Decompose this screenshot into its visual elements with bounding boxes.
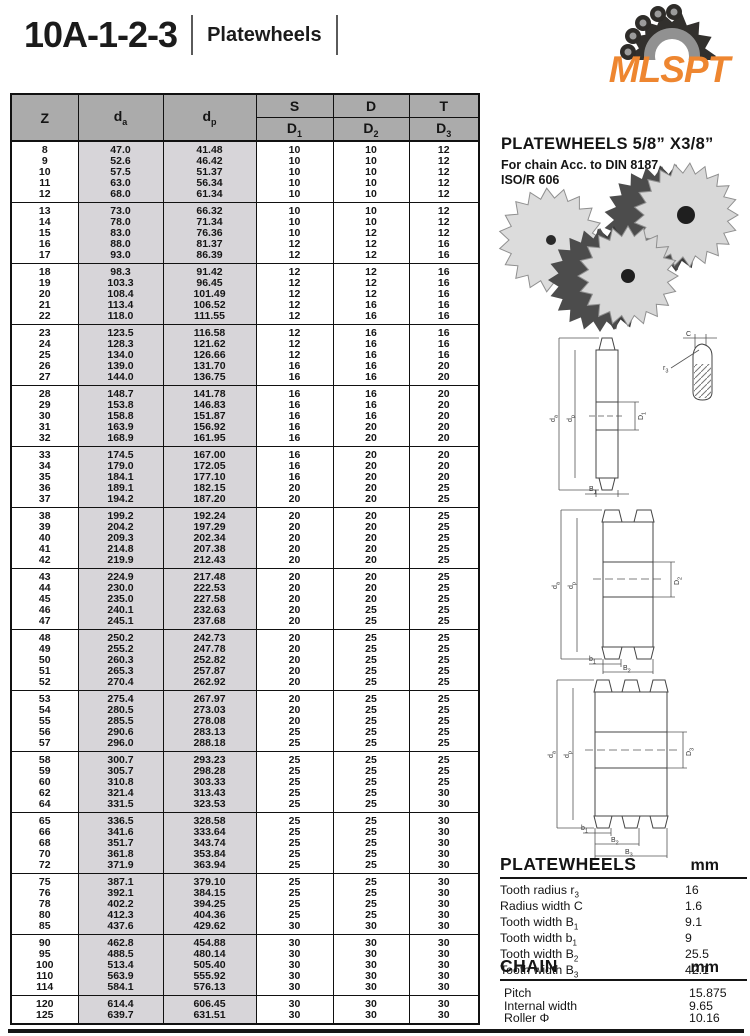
table-cell: 47 (11, 616, 78, 630)
table-cell: 101.49 (163, 289, 256, 300)
table-cell: 283.13 (163, 727, 256, 738)
table-cell: 488.5 (78, 949, 163, 960)
title-divider (336, 15, 338, 55)
table-cell: 16 (333, 400, 409, 411)
table-cell: 68.0 (78, 189, 163, 203)
table-cell: 32 (11, 433, 78, 447)
table-row: 65336.5328.58252530 (11, 813, 479, 827)
table-cell: 80 (11, 910, 78, 921)
table-group: 65336.5328.5825253066341.6333.6425253068… (11, 813, 479, 874)
table-cell: 20 (256, 605, 333, 616)
table-group: 23123.5116.5812161624128.3121.6212161625… (11, 325, 479, 386)
table-cell: 12 (256, 289, 333, 300)
col-header-d2: D2 (333, 118, 409, 142)
table-cell: 56.34 (163, 178, 256, 189)
table-cell: 10 (11, 167, 78, 178)
table-cell: 10 (333, 141, 409, 156)
table-cell: 513.4 (78, 960, 163, 971)
table-row: 125639.7631.51303030 (11, 1010, 479, 1025)
table-row: 80412.3404.36252530 (11, 910, 479, 921)
table-cell: 270.4 (78, 677, 163, 691)
table-cell: 10 (256, 178, 333, 189)
table-cell: 20 (409, 422, 479, 433)
table-cell: 250.2 (78, 630, 163, 644)
table-cell: 16 (256, 447, 333, 461)
table-row: 30158.8151.87161620 (11, 411, 479, 422)
table-cell: 584.1 (78, 982, 163, 996)
table-cell: 25 (333, 691, 409, 705)
table-cell: 20 (256, 666, 333, 677)
table-row: 847.041.48101012 (11, 141, 479, 156)
table-row: 45235.0227.58202025 (11, 594, 479, 605)
table-cell: 75 (11, 874, 78, 888)
table-cell: 16 (333, 311, 409, 325)
svg-text:C: C (686, 331, 691, 338)
table-row: 70361.8353.84252530 (11, 849, 479, 860)
table-cell: 172.05 (163, 461, 256, 472)
table-cell: 20 (256, 630, 333, 644)
sprockets-photo (486, 158, 748, 336)
table-cell: 12 (333, 239, 409, 250)
table-row: 56290.6283.13252525 (11, 727, 479, 738)
table-cell: 55 (11, 716, 78, 727)
table-cell: 41.48 (163, 141, 256, 156)
table-cell: 110 (11, 971, 78, 982)
table-cell: 118.0 (78, 311, 163, 325)
table-cell: 19 (11, 278, 78, 289)
table-cell: 25 (333, 727, 409, 738)
table-row: 51265.3257.87202525 (11, 666, 479, 677)
table-cell: 10 (333, 178, 409, 189)
table-cell: 25 (409, 533, 479, 544)
svg-text:da: da (550, 414, 560, 422)
table-cell: 387.1 (78, 874, 163, 888)
table-cell: 30 (333, 960, 409, 971)
table-cell: 21 (11, 300, 78, 311)
table-cell: 30 (333, 971, 409, 982)
table-cell: 14 (11, 217, 78, 228)
table-cell: 24 (11, 339, 78, 350)
table-cell: 100 (11, 960, 78, 971)
table-cell: 20 (333, 555, 409, 569)
table-cell: 20 (333, 433, 409, 447)
table-cell: 30 (256, 996, 333, 1010)
table-cell: 20 (256, 644, 333, 655)
table-cell: 25 (409, 644, 479, 655)
table-cell: 30 (409, 935, 479, 949)
triplex-drawing: da dp D3 b1 B2 B3 (545, 668, 750, 860)
table-cell: 16 (333, 411, 409, 422)
table-row: 1898.391.42121216 (11, 264, 479, 278)
table-cell: 16 (409, 289, 479, 300)
table-cell: 30 (409, 971, 479, 982)
table-cell: 53 (11, 691, 78, 705)
table-row: 26139.0131.70161620 (11, 361, 479, 372)
table-cell: 10 (333, 156, 409, 167)
table-row: 78402.2394.25252530 (11, 899, 479, 910)
table-cell: 30 (333, 1010, 409, 1025)
table-cell: 217.48 (163, 569, 256, 583)
table-row: 21113.4106.52121616 (11, 300, 479, 311)
table-cell: 26 (11, 361, 78, 372)
table-cell: 30 (409, 982, 479, 996)
table-cell: 179.0 (78, 461, 163, 472)
table-cell: 30 (409, 799, 479, 813)
table-cell: 25 (333, 752, 409, 766)
table-cell: 25 (256, 899, 333, 910)
table-row: 23123.5116.58121616 (11, 325, 479, 339)
table-cell: 30 (256, 921, 333, 935)
table-cell: 91.42 (163, 264, 256, 278)
brand-name: MLSPT (594, 49, 744, 91)
table-cell: 25 (333, 716, 409, 727)
table-cell: 20 (333, 583, 409, 594)
table-row: 38199.2192.24202025 (11, 508, 479, 522)
page-bottom-rule (8, 1029, 744, 1033)
table-cell: 27 (11, 372, 78, 386)
table-cell: 95 (11, 949, 78, 960)
table-group: 28148.7141.7816162029153.8146.8316162030… (11, 386, 479, 447)
table-cell: 25 (333, 738, 409, 752)
table-cell: 25 (256, 752, 333, 766)
table-row: 72371.9363.94252530 (11, 860, 479, 874)
table-cell: 146.83 (163, 400, 256, 411)
table-cell: 16 (409, 264, 479, 278)
table-cell: 288.18 (163, 738, 256, 752)
table-cell: 16 (333, 372, 409, 386)
table-cell: 30 (409, 921, 479, 935)
table-cell: 16 (256, 386, 333, 400)
table-header: Z da dp S D T D1 D2 D3 (11, 94, 479, 141)
svg-text:B2: B2 (611, 837, 619, 847)
table-cell: 54 (11, 705, 78, 716)
table-cell: 328.58 (163, 813, 256, 827)
table-cell: 38 (11, 508, 78, 522)
col-header-dp: dp (163, 94, 256, 141)
col-header-d: D (333, 94, 409, 118)
table-cell: 25 (256, 838, 333, 849)
table-cell: 25 (333, 605, 409, 616)
table-row: 1268.061.34101012 (11, 189, 479, 203)
table-cell: 17 (11, 250, 78, 264)
table-cell: 384.15 (163, 888, 256, 899)
table-cell: 576.13 (163, 982, 256, 996)
table-cell: 10 (333, 203, 409, 217)
table-row: 37194.2187.20202025 (11, 494, 479, 508)
table-cell: 153.8 (78, 400, 163, 411)
table-cell: 25 (256, 813, 333, 827)
table-row: 120614.4606.45303030 (11, 996, 479, 1010)
table-cell: 606.45 (163, 996, 256, 1010)
table-row: 27144.0136.75161620 (11, 372, 479, 386)
table-cell: 199.2 (78, 508, 163, 522)
table-cell: 29 (11, 400, 78, 411)
table-cell: 25 (409, 766, 479, 777)
table-cell: 20 (409, 372, 479, 386)
table-cell: 12 (256, 239, 333, 250)
table-row: 90462.8454.88303030 (11, 935, 479, 949)
table-cell: 12 (333, 278, 409, 289)
table-group: 38199.2192.2420202539204.2197.2920202540… (11, 508, 479, 569)
table-cell: 113.4 (78, 300, 163, 311)
table-cell: 25 (333, 799, 409, 813)
table-cell: 237.68 (163, 616, 256, 630)
table-row: 57296.0288.18252525 (11, 738, 479, 752)
table-cell: 148.7 (78, 386, 163, 400)
table-row: 60310.8303.33252525 (11, 777, 479, 788)
table-cell: 313.43 (163, 788, 256, 799)
table-cell: 12 (11, 189, 78, 203)
table-row: 50260.3252.82202525 (11, 655, 479, 666)
table-cell: 293.23 (163, 752, 256, 766)
table-cell: 20 (256, 583, 333, 594)
table-cell: 235.0 (78, 594, 163, 605)
table-group: 120614.4606.45303030125639.7631.51303030 (11, 996, 479, 1025)
table-cell: 47.0 (78, 141, 163, 156)
table-cell: 563.9 (78, 971, 163, 982)
table-cell: 20 (256, 594, 333, 605)
table-cell: 275.4 (78, 691, 163, 705)
table-row: 24128.3121.62121616 (11, 339, 479, 350)
table-cell: 25 (333, 910, 409, 921)
table-cell: 480.14 (163, 949, 256, 960)
svg-text:dp: dp (564, 751, 574, 758)
table-row: 62321.4313.43252530 (11, 788, 479, 799)
table-cell: 331.5 (78, 799, 163, 813)
table-cell: 404.36 (163, 910, 256, 921)
table-cell: 184.1 (78, 472, 163, 483)
table-cell: 16 (333, 361, 409, 372)
table-cell: 240.1 (78, 605, 163, 616)
table-cell: 12 (409, 167, 479, 178)
table-cell: 371.9 (78, 860, 163, 874)
table-cell: 336.5 (78, 813, 163, 827)
table-cell: 40 (11, 533, 78, 544)
table-cell: 114 (11, 982, 78, 996)
table-row: 55285.5278.08202525 (11, 716, 479, 727)
table-cell: 103.3 (78, 278, 163, 289)
table-cell: 18 (11, 264, 78, 278)
table-row: 48250.2242.73202525 (11, 630, 479, 644)
table-cell: 16 (409, 339, 479, 350)
table-cell: 25 (333, 849, 409, 860)
table-cell: 16 (333, 386, 409, 400)
table-cell: 245.1 (78, 616, 163, 630)
table-cell: 60 (11, 777, 78, 788)
table-cell: 16 (333, 300, 409, 311)
col-header-t: T (409, 94, 479, 118)
table-group: 1898.391.4212121619103.396.4512121620108… (11, 264, 479, 325)
table-cell: 392.1 (78, 888, 163, 899)
table-row: 100513.4505.40303030 (11, 960, 479, 971)
table-cell: 30 (409, 888, 479, 899)
table-group: 48250.2242.7320252549255.2247.7820252550… (11, 630, 479, 691)
table-cell: 25 (409, 494, 479, 508)
table-row: 35184.1177.10162020 (11, 472, 479, 483)
table-cell: 81.37 (163, 239, 256, 250)
table-cell: 303.33 (163, 777, 256, 788)
table-cell: 454.88 (163, 935, 256, 949)
table-cell: 20 (333, 508, 409, 522)
table-cell: 12 (409, 156, 479, 167)
table-cell: 65 (11, 813, 78, 827)
table-cell: 20 (256, 555, 333, 569)
table-cell: 25 (333, 860, 409, 874)
table-cell: 20 (256, 508, 333, 522)
table-cell: 8 (11, 141, 78, 156)
table-cell: 25 (256, 766, 333, 777)
table-cell: 505.40 (163, 960, 256, 971)
table-cell: 25 (256, 777, 333, 788)
page-title: 10A-1-2-3 (24, 14, 177, 56)
table-cell: 16 (256, 400, 333, 411)
table-cell: 30 (333, 921, 409, 935)
table-cell: 25 (409, 727, 479, 738)
table-cell: 36 (11, 483, 78, 494)
table-cell: 10 (256, 217, 333, 228)
table-cell: 10 (256, 156, 333, 167)
table-cell: 639.7 (78, 1010, 163, 1025)
table-cell: 25 (409, 752, 479, 766)
table-cell: 363.94 (163, 860, 256, 874)
table-row: 1373.066.32101012 (11, 203, 479, 217)
table-row: 20108.4101.49121216 (11, 289, 479, 300)
table-cell: 631.51 (163, 1010, 256, 1025)
table-cell: 25 (333, 705, 409, 716)
table-cell: 343.74 (163, 838, 256, 849)
table-group: 58300.7293.2325252559305.7298.2825252560… (11, 752, 479, 813)
table-cell: 34 (11, 461, 78, 472)
table-cell: 192.24 (163, 508, 256, 522)
table-row: 1057.551.37101012 (11, 167, 479, 178)
catalog-page: 10A-1-2-3 Platewheels MLSPT (0, 0, 750, 1036)
table-cell: 10 (333, 217, 409, 228)
table-group: 1373.066.321010121478.071.341010121583.0… (11, 203, 479, 264)
table-cell: 56 (11, 727, 78, 738)
table-cell: 16 (256, 422, 333, 433)
table-cell: 76.36 (163, 228, 256, 239)
table-cell: 25 (409, 594, 479, 605)
table-cell: 20 (256, 677, 333, 691)
table-cell: 353.84 (163, 849, 256, 860)
table-cell: 136.75 (163, 372, 256, 386)
table-cell: 25 (333, 644, 409, 655)
table-cell: 44 (11, 583, 78, 594)
table-cell: 12 (256, 311, 333, 325)
table-cell: 429.62 (163, 921, 256, 935)
table-group: 75387.1379.1025253076392.1384.1525253078… (11, 874, 479, 935)
table-cell: 20 (333, 483, 409, 494)
table-cell: 25 (409, 691, 479, 705)
table-cell: 30 (333, 982, 409, 996)
table-row: 64331.5323.53252530 (11, 799, 479, 813)
table-cell: 394.25 (163, 899, 256, 910)
table-cell: 219.9 (78, 555, 163, 569)
svg-text:D3: D3 (686, 748, 696, 756)
table-cell: 197.29 (163, 522, 256, 533)
table-cell: 58 (11, 752, 78, 766)
table-cell: 30 (409, 910, 479, 921)
table-row: 49255.2247.78202525 (11, 644, 479, 655)
table-cell: 230.0 (78, 583, 163, 594)
table-cell: 25 (333, 827, 409, 838)
table-cell: 12 (256, 339, 333, 350)
table-cell: 52.6 (78, 156, 163, 167)
table-cell: 96.45 (163, 278, 256, 289)
table-cell: 16 (256, 433, 333, 447)
table-cell: 134.0 (78, 350, 163, 361)
col-header-da: da (78, 94, 163, 141)
table-cell: 20 (333, 594, 409, 605)
brand-logo: MLSPT (594, 2, 744, 91)
col-header-d1: D1 (256, 118, 333, 142)
table-cell: 12 (409, 203, 479, 217)
table-cell: 204.2 (78, 522, 163, 533)
table-cell: 202.34 (163, 533, 256, 544)
spec-row-roller-diameter: Roller Φ10.16 (500, 1012, 747, 1025)
table-cell: 25 (333, 899, 409, 910)
page-subtitle: Platewheels (207, 24, 322, 47)
table-cell: 125 (11, 1010, 78, 1025)
table-cell: 16 (409, 250, 479, 264)
table-cell: 10 (256, 228, 333, 239)
table-row: 19103.396.45121216 (11, 278, 479, 289)
table-cell: 35 (11, 472, 78, 483)
spec-title: CHAIN (500, 956, 558, 977)
table-cell: 144.0 (78, 372, 163, 386)
table-cell: 30 (256, 1010, 333, 1025)
table-cell: 351.7 (78, 838, 163, 849)
table-cell: 16 (256, 411, 333, 422)
table-cell: 121.62 (163, 339, 256, 350)
table-cell: 20 (256, 569, 333, 583)
table-cell: 120 (11, 996, 78, 1010)
table-cell: 68 (11, 838, 78, 849)
table-cell: 280.5 (78, 705, 163, 716)
table-cell: 379.10 (163, 874, 256, 888)
table-cell: 25 (333, 666, 409, 677)
table-cell: 16 (256, 461, 333, 472)
table-cell: 83.0 (78, 228, 163, 239)
table-cell: 614.4 (78, 996, 163, 1010)
table-cell: 25 (333, 777, 409, 788)
table-cell: 139.0 (78, 361, 163, 372)
table-cell: 25 (409, 677, 479, 691)
table-cell: 30 (409, 860, 479, 874)
table-cell: 255.2 (78, 644, 163, 655)
table-row: 28148.7141.78161620 (11, 386, 479, 400)
table-cell: 86.39 (163, 250, 256, 264)
table-cell: 43 (11, 569, 78, 583)
table-cell: 305.7 (78, 766, 163, 777)
table-cell: 25 (333, 630, 409, 644)
table-cell: 25 (333, 766, 409, 777)
table-cell: 16 (256, 472, 333, 483)
table-cell: 30 (409, 827, 479, 838)
table-cell: 30 (409, 960, 479, 971)
table-cell: 90 (11, 935, 78, 949)
table-row: 47245.1237.68202525 (11, 616, 479, 630)
table-cell: 20 (256, 533, 333, 544)
table-cell: 51 (11, 666, 78, 677)
table-cell: 30 (333, 935, 409, 949)
table-cell: 28 (11, 386, 78, 400)
table-cell: 222.53 (163, 583, 256, 594)
table-cell: 20 (333, 461, 409, 472)
table-row: 29153.8146.83161620 (11, 400, 479, 411)
table-cell: 50 (11, 655, 78, 666)
table-cell: 30 (409, 996, 479, 1010)
